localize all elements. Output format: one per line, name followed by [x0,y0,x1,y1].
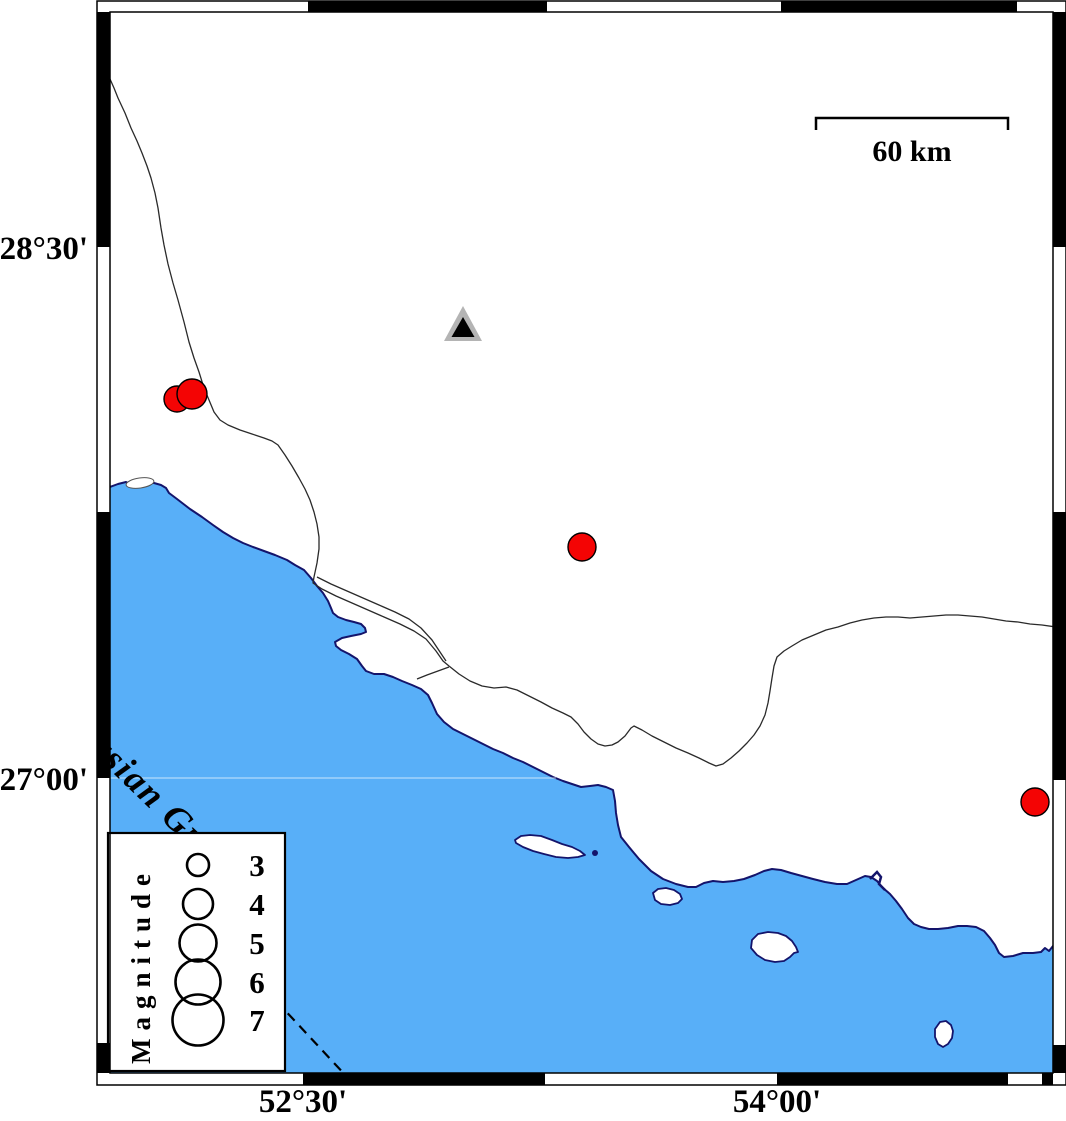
earthquake-marker-3 [568,533,596,561]
longitude-label: 52°30' [259,1084,347,1120]
map-figure: Persian Gulf 60 km Magnitude 34567 28°30… [0,0,1066,1121]
scale-bar-label: 60 km [872,135,951,168]
seismicity-map-page: Persian Gulf 60 km Magnitude 34567 28°30… [0,0,1066,1121]
border-line-4 [449,615,1056,766]
latitude-label: 28°30' [0,231,88,267]
frame-segment-bottom [1042,1073,1053,1085]
islet-dot [592,850,598,856]
border-line-3 [417,667,449,679]
frame-segment-top [781,1,1017,12]
frame-segment-right [1053,1045,1066,1073]
longitude-label: 54°00' [733,1084,821,1120]
frame-segment-top [308,1,547,12]
station-triangle-marker [444,306,482,341]
frame-segment-right [1053,512,1066,780]
legend-label-m3: 3 [249,848,265,883]
legend-label-m7: 7 [249,1003,265,1038]
earthquake-marker-2 [177,379,207,409]
legend-label-m4: 4 [249,887,265,922]
legend-title: Magnitude [126,866,156,1064]
legend-label-m5: 5 [249,926,265,961]
earthquake-marker-4 [1021,788,1049,816]
scale-bar: 60 km [816,118,1008,168]
frame-segment-left [97,12,110,247]
legend-label-m6: 6 [249,965,265,1000]
scale-bar-bracket [816,118,1008,130]
magnitude-legend: Magnitude 34567 [108,833,285,1071]
frame-segment-right [1053,12,1066,247]
frame-segment-left [97,1043,110,1073]
frame-segment-left [97,512,110,778]
latitude-label: 27°00' [0,762,88,798]
